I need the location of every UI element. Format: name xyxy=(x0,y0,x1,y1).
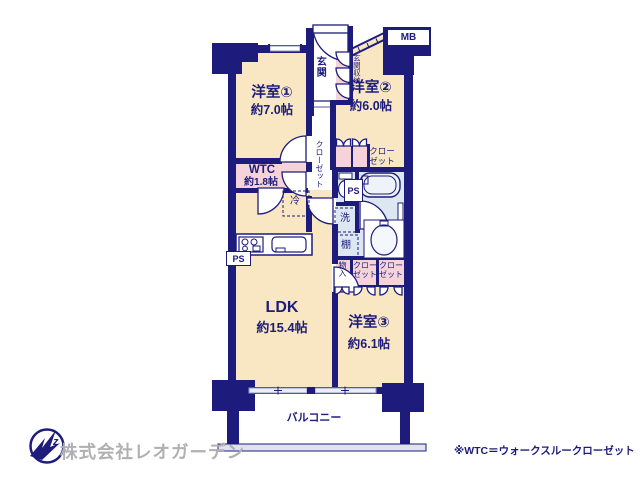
kitchen-sink xyxy=(272,237,306,252)
washer-label: 洗 xyxy=(340,213,350,224)
logo-z-mark: z xyxy=(53,436,59,448)
closet-y3b-label: クローゼット xyxy=(379,262,403,280)
genkan-label: 玄関 xyxy=(314,56,325,78)
balcony-label: バルコニー xyxy=(282,412,346,424)
closet-hall-label: クローゼット xyxy=(314,140,323,188)
ps-toilet-box: PS xyxy=(344,179,363,202)
company-name: 株式会社レオガーデン xyxy=(60,443,245,463)
refrigerator-label: 冷 xyxy=(290,196,300,207)
window-top xyxy=(270,46,300,51)
closet-y3a-label: クローゼット xyxy=(353,262,377,280)
room-fill-ldk xyxy=(232,190,332,387)
yoshitsu2-size: 約6.0帖 xyxy=(337,99,405,113)
pillar-bottom-left xyxy=(212,380,255,411)
pillar-bottom-right xyxy=(382,383,424,412)
wtc-name: WTC xyxy=(238,164,286,177)
mb-box: MB xyxy=(387,29,430,46)
ldk-size: 約15.4帖 xyxy=(238,321,326,336)
yoshitsu1-name: 洋室① xyxy=(237,85,307,101)
bathtub xyxy=(360,173,400,197)
mono-ire-label: 物入 xyxy=(337,261,346,277)
shelf-label: 棚 xyxy=(341,240,351,251)
wtc-size: 約1.8帖 xyxy=(232,177,290,188)
balcony-railing xyxy=(218,444,426,451)
genkan-shuno-label: 玄関収納 xyxy=(352,54,360,84)
washbasin xyxy=(364,220,404,258)
wtc-footnote: ※WTC＝ウォークスルークローゼット xyxy=(454,446,635,458)
yoshitsu3-name: 洋室③ xyxy=(336,315,402,331)
genkan-step xyxy=(312,101,333,107)
pillar-top-left xyxy=(212,43,242,74)
yoshitsu2-name: 洋室② xyxy=(337,80,405,96)
yoshitsu1-size: 約7.0帖 xyxy=(237,103,307,117)
ldk-name: LDK xyxy=(238,299,326,317)
ps-left-box: PS xyxy=(226,251,251,266)
yoshitsu3-size: 約6.1帖 xyxy=(336,337,402,351)
floor-plan-page: 洋室① 約7.0帖 洋室② 約6.0帖 洋室③ 約6.1帖 LDK 約15.4帖… xyxy=(0,0,640,480)
entrance-door-leaf xyxy=(313,25,348,33)
closet-y2-label: クローゼット xyxy=(368,147,396,166)
